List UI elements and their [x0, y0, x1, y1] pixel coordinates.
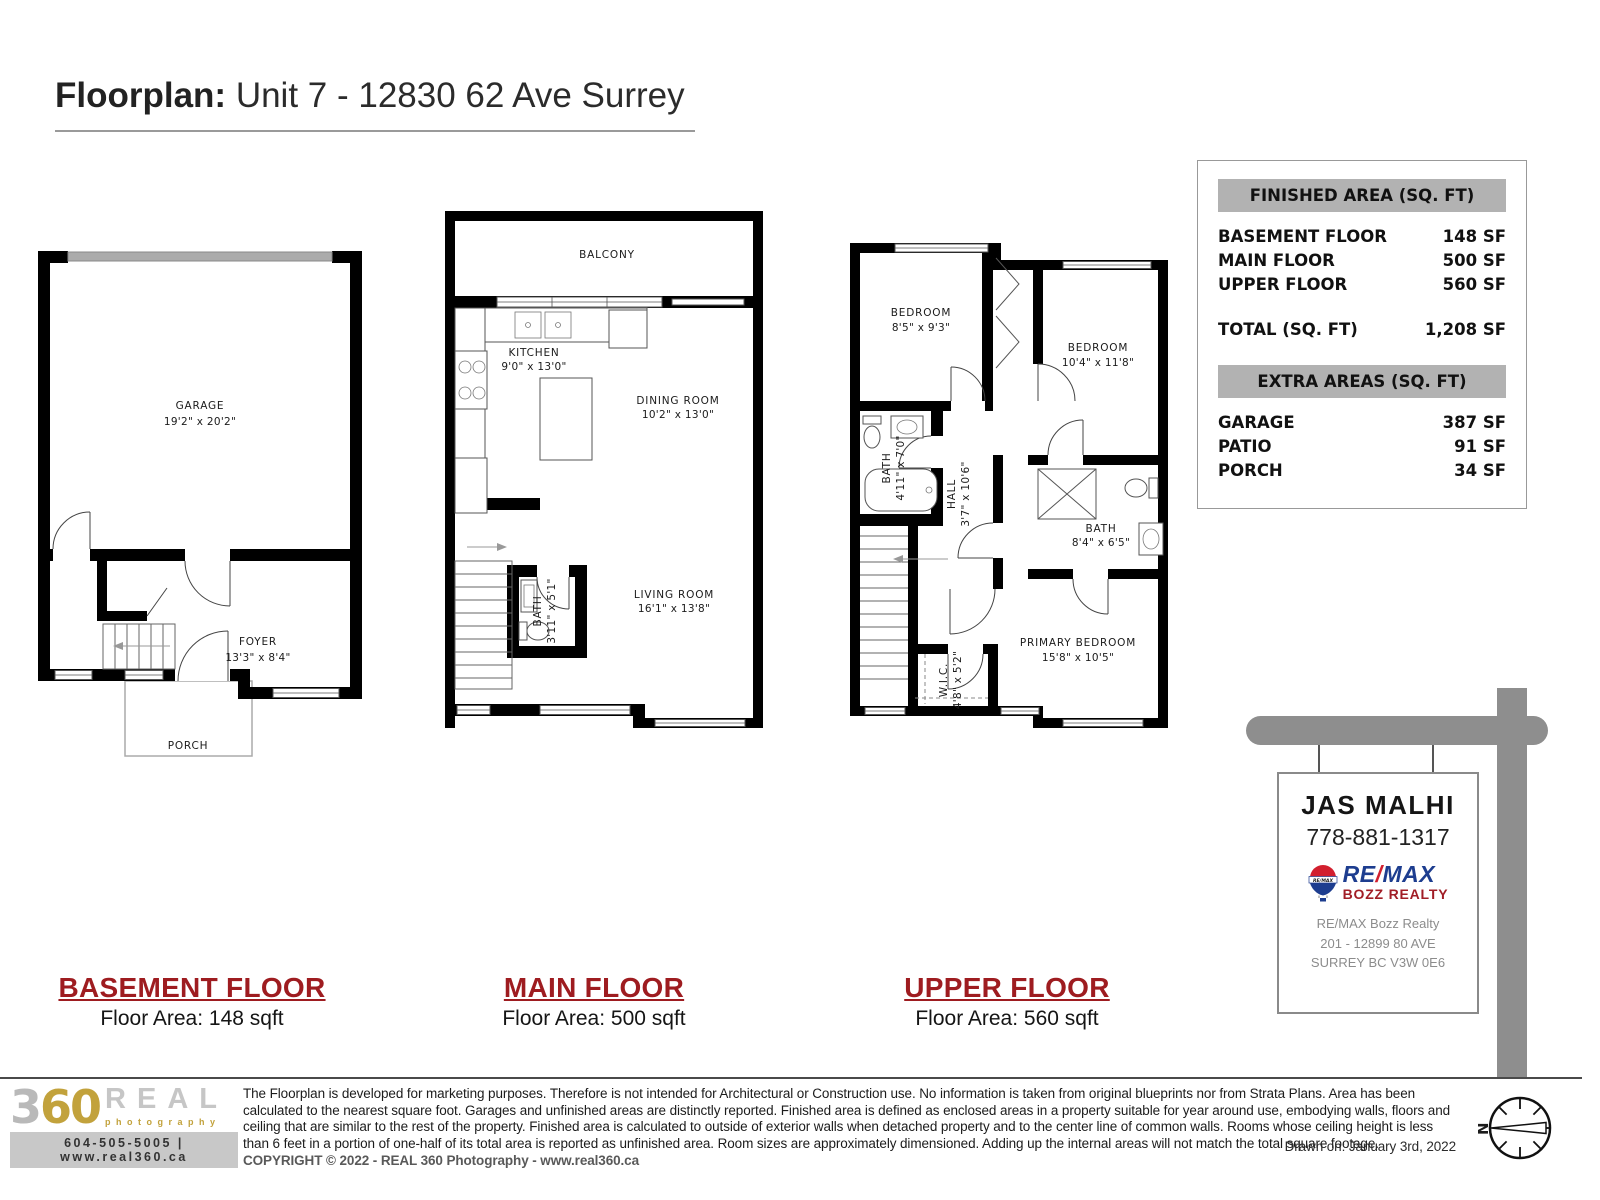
- row-value: 34 SF: [1454, 459, 1506, 483]
- floor-title: BASEMENT FLOOR: [27, 972, 357, 1004]
- logo-photography-text: photography: [105, 1117, 228, 1127]
- disclaimer-text: The Floorplan is developed for marketing…: [243, 1086, 1456, 1156]
- row-label: PORCH: [1218, 459, 1283, 483]
- logo-real-text: REAL: [105, 1085, 228, 1114]
- upper-bath1-label: BATH: [881, 452, 893, 483]
- kitchen-fixtures: [455, 308, 647, 513]
- basement-floorplan: GARAGE 19'2" x 20'2" FOYER 13'3" x 8'4" …: [35, 246, 365, 788]
- row-label: MAIN FLOOR: [1218, 249, 1335, 273]
- floor-area-subtitle: Floor Area: 500 sqft: [429, 1007, 759, 1031]
- table-row: UPPER FLOOR 560 SF: [1218, 273, 1506, 297]
- upper-bath1-dims: 4'11" x 7'0": [895, 435, 907, 500]
- hall-dims: 3'7" x 10'6": [960, 461, 972, 526]
- floor-title: MAIN FLOOR: [429, 972, 759, 1004]
- copyright-text: COPYRIGHT © 2022 - REAL 360 Photography …: [243, 1153, 639, 1168]
- porch-label: PORCH: [168, 740, 209, 752]
- sign-hanger-left: [1318, 745, 1320, 772]
- remax-logo: RE/MAX RE/MAX BOZZ REALTY: [1279, 862, 1477, 902]
- brand-re: RE: [1343, 861, 1376, 887]
- real360-logo-row: 360 REAL photography: [10, 1085, 238, 1127]
- main-stairs: [455, 543, 512, 689]
- floor-title: UPPER FLOOR: [842, 972, 1172, 1004]
- office-line: RE/MAX Bozz Realty: [1279, 914, 1477, 934]
- table-row-total: TOTAL (SQ. FT) 1,208 SF: [1218, 318, 1506, 342]
- kitchen-dims: 9'0" x 13'0": [501, 361, 566, 373]
- floor-area-subtitle: Floor Area: 560 sqft: [842, 1007, 1172, 1031]
- balcony-label: BALCONY: [579, 249, 635, 261]
- row-value: 500 SF: [1443, 249, 1506, 273]
- brand-sub: BOZZ REALTY: [1343, 887, 1449, 901]
- extra-areas-header: EXTRA AREAS (SQ. FT): [1218, 365, 1506, 398]
- primary-bedroom-label: PRIMARY BEDROOM: [1020, 637, 1136, 649]
- logo-digit-3: 3: [10, 1080, 40, 1134]
- main-openings: [537, 565, 569, 577]
- bedroom2-dims: 10'4" x 11'8": [1062, 357, 1134, 369]
- total-value: 1,208 SF: [1425, 318, 1506, 342]
- table-row: GARAGE 387 SF: [1218, 411, 1506, 435]
- main-windows: [457, 297, 745, 727]
- bedroom1-label: BEDROOM: [891, 307, 951, 319]
- logo-360-digits: 360: [10, 1088, 100, 1127]
- logo-digit-0: 0: [70, 1080, 100, 1134]
- row-value: 91 SF: [1454, 435, 1506, 459]
- upper-floorplan: BEDROOM 8'5" x 9'3" BEDROOM 10'4" x 11'8…: [833, 236, 1168, 728]
- hall-label: HALL: [946, 479, 958, 509]
- table-row: PORCH 34 SF: [1218, 459, 1506, 483]
- floor-area-subtitle: Floor Area: 148 sqft: [27, 1007, 357, 1031]
- sign-post-arm: [1246, 716, 1548, 745]
- table-row: MAIN FLOOR 500 SF: [1218, 249, 1506, 273]
- compass-north-label: N: [1478, 1122, 1492, 1135]
- office-line: 201 - 12899 80 AVE: [1279, 934, 1477, 954]
- compass-icon: N: [1478, 1086, 1562, 1170]
- brand-max: MAX: [1382, 861, 1435, 887]
- upper-floor-title-block: UPPER FLOOR Floor Area: 560 sqft: [842, 972, 1172, 1031]
- real360-logo: 360 REAL photography 604-505-5005 | www.…: [10, 1085, 238, 1168]
- finished-area-rows: BASEMENT FLOOR 148 SF MAIN FLOOR 500 SF …: [1218, 225, 1506, 342]
- realtor-sign-board: JAS MALHI 778-881-1317 RE/MAX RE/MAX BOZ…: [1277, 772, 1479, 1014]
- main-walls: [445, 211, 763, 728]
- disclaimer-body: The Floorplan is developed for marketing…: [243, 1086, 1450, 1151]
- row-label: PATIO: [1218, 435, 1272, 459]
- sign-post-pole: [1497, 688, 1527, 1078]
- logo-real-block: REAL photography: [105, 1085, 228, 1127]
- living-label: LIVING ROOM: [634, 589, 714, 601]
- bedroom2-label: BEDROOM: [1068, 342, 1128, 354]
- office-line: SURREY BC V3W 0E6: [1279, 953, 1477, 973]
- sign-hanger-right: [1432, 745, 1434, 772]
- basement-stairs: [103, 624, 175, 669]
- main-floor-title-block: MAIN FLOOR Floor Area: 500 sqft: [429, 972, 759, 1031]
- main-floorplan: BALCONY KITCHEN 9'0" x 13'0" DINING ROOM…: [437, 206, 767, 728]
- row-value: 148 SF: [1443, 225, 1506, 249]
- living-dims: 16'1" x 13'8": [638, 603, 710, 615]
- office-address: RE/MAX Bozz Realty 201 - 12899 80 AVE SU…: [1279, 914, 1477, 973]
- upper-bath2-dims: 8'4" x 6'5": [1072, 537, 1130, 549]
- basement-doors: [53, 512, 230, 681]
- area-summary-table: FINISHED AREA (SQ. FT) BASEMENT FLOOR 14…: [1197, 160, 1527, 509]
- real360-contact-bar: 604-505-5005 | www.real360.ca: [10, 1132, 238, 1168]
- foyer-label: FOYER: [239, 636, 277, 648]
- page-title: Floorplan: Unit 7 - 12830 62 Ave Surrey: [55, 76, 695, 132]
- extra-area-rows: GARAGE 387 SF PATIO 91 SF PORCH 34 SF: [1218, 411, 1506, 483]
- wic-label: W.I.C.: [938, 663, 950, 697]
- table-row: BASEMENT FLOOR 148 SF: [1218, 225, 1506, 249]
- footer-divider: [0, 1077, 1582, 1079]
- bedroom1-dims: 8'5" x 9'3": [892, 322, 950, 334]
- drawn-on-date: Drawn on: January 3rd, 2022: [1285, 1139, 1456, 1156]
- balloon-text: RE/MAX: [1313, 878, 1333, 884]
- main-bath-dims: 3'11" x 5'1": [546, 578, 558, 643]
- garage-door-band: [68, 252, 332, 261]
- row-value: 560 SF: [1443, 273, 1506, 297]
- garage-label: GARAGE: [176, 400, 225, 412]
- main-bath-label: BATH: [532, 595, 544, 626]
- primary-bedroom-dims: 15'8" x 10'5": [1042, 652, 1114, 664]
- total-label: TOTAL (SQ. FT): [1218, 318, 1358, 342]
- upper-stairs: [860, 536, 948, 679]
- agent-name: JAS MALHI: [1279, 790, 1477, 821]
- remax-balloon-icon: RE/MAX: [1308, 862, 1338, 902]
- row-label: BASEMENT FLOOR: [1218, 225, 1387, 249]
- basement-floor-title-block: BASEMENT FLOOR Floor Area: 148 sqft: [27, 972, 357, 1031]
- foyer-dims: 13'3" x 8'4": [225, 652, 290, 664]
- dining-label: DINING ROOM: [636, 395, 719, 407]
- table-row: PATIO 91 SF: [1218, 435, 1506, 459]
- row-value: 387 SF: [1443, 411, 1506, 435]
- agent-phone: 778-881-1317: [1279, 824, 1477, 851]
- page-title-address: Unit 7 - 12830 62 Ave Surrey: [226, 76, 685, 115]
- basement-walls: [38, 251, 362, 699]
- row-label: GARAGE: [1218, 411, 1295, 435]
- logo-digit-6: 6: [40, 1080, 70, 1134]
- finished-area-header: FINISHED AREA (SQ. FT): [1218, 179, 1506, 212]
- page-title-prefix: Floorplan:: [55, 76, 226, 115]
- garage-dims: 19'2" x 20'2": [164, 416, 236, 428]
- dining-dims: 10'2" x 13'0": [642, 409, 714, 421]
- row-label: UPPER FLOOR: [1218, 273, 1347, 297]
- floorplan-page: Floorplan: Unit 7 - 12830 62 Ave Surrey: [0, 0, 1600, 1200]
- upper-bath2-label: BATH: [1085, 523, 1116, 535]
- remax-wordmark: RE/MAX BOZZ REALTY: [1343, 863, 1449, 901]
- kitchen-label: KITCHEN: [508, 347, 559, 359]
- wic-dims: 4'8" x 5'2": [952, 651, 964, 709]
